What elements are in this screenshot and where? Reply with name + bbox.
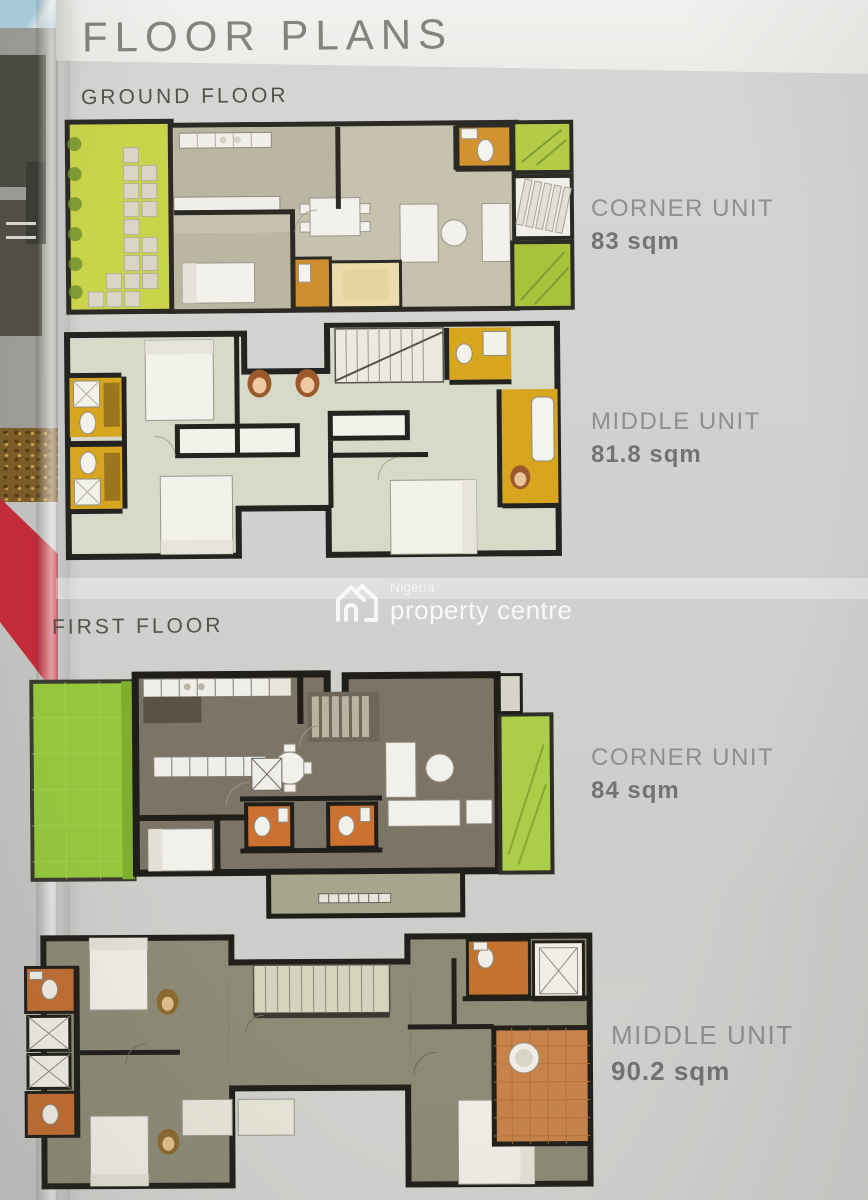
ground-floor-middle-unit-plan xyxy=(59,321,571,573)
unit-label-first-middle: MIDDLE UNIT 90.2 sqm xyxy=(611,1020,794,1087)
unit-label-ground-middle: MIDDLE UNIT 81.8 sqm xyxy=(591,408,761,469)
ground-floor-corner-unit-plan xyxy=(61,110,578,324)
unit-name: MIDDLE UNIT xyxy=(611,1020,794,1051)
balcony-rail xyxy=(6,222,36,225)
unit-area: 84 sqm xyxy=(591,777,774,805)
first-floor-corner-unit-plan xyxy=(29,664,579,930)
unit-name: CORNER UNIT xyxy=(591,195,774,223)
unit-label-first-corner: CORNER UNIT 84 sqm xyxy=(591,744,774,805)
unit-name: MIDDLE UNIT xyxy=(591,408,761,436)
section-label-first-floor: FIRST FLOOR xyxy=(52,614,224,640)
house-icon xyxy=(334,580,380,622)
unit-area: 90.2 sqm xyxy=(611,1056,794,1087)
unit-area: 81.8 sqm xyxy=(591,441,761,469)
unit-name: CORNER UNIT xyxy=(591,744,774,772)
brochure-photo: FLOOR PLANS GROUND FLOOR xyxy=(0,0,868,1200)
unit-label-ground-corner: CORNER UNIT 83 sqm xyxy=(591,195,774,256)
watermark-brand-top: Nigeria xyxy=(390,580,572,594)
balcony-rail xyxy=(6,236,36,239)
section-label-ground-floor: GROUND FLOOR xyxy=(81,84,289,110)
first-floor-middle-unit-plan xyxy=(15,931,610,1200)
page-title: FLOOR PLANS xyxy=(82,10,453,61)
unit-area: 83 sqm xyxy=(591,228,774,256)
watermark-logo: Nigeria property centre xyxy=(334,580,572,623)
watermark-brand-bottom: property centre xyxy=(390,597,572,623)
